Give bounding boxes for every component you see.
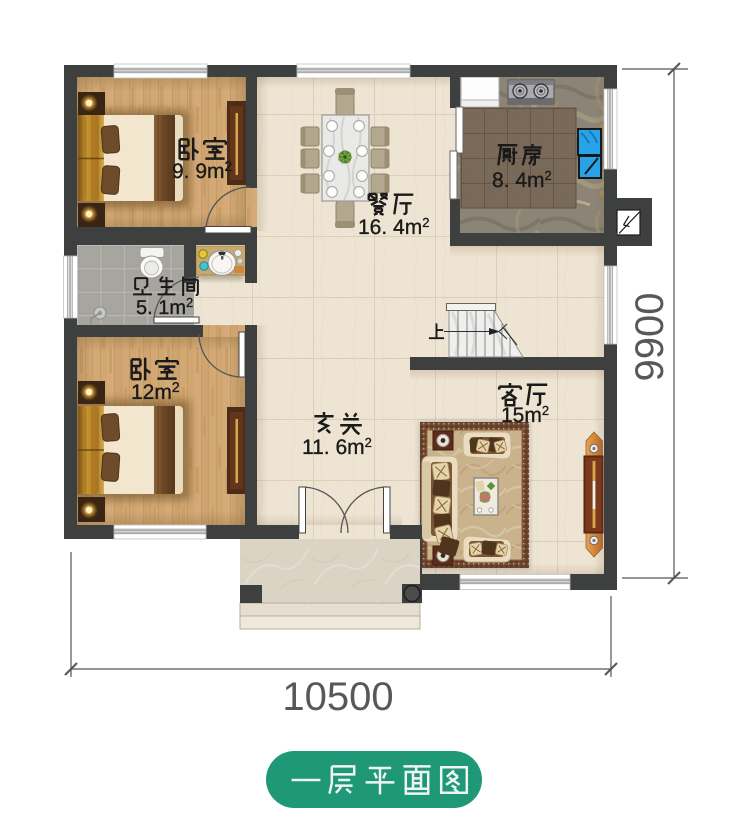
svg-text:8. 4m2: 8. 4m2 bbox=[492, 168, 552, 192]
svg-text:5. 1m2: 5. 1m2 bbox=[136, 295, 193, 319]
svg-text:9. 9m2: 9. 9m2 bbox=[172, 158, 233, 183]
svg-text:10500: 10500 bbox=[282, 675, 393, 719]
svg-text:16. 4m2: 16. 4m2 bbox=[358, 215, 429, 239]
svg-text:9900: 9900 bbox=[628, 293, 672, 382]
svg-text:11. 6m2: 11. 6m2 bbox=[302, 435, 372, 459]
